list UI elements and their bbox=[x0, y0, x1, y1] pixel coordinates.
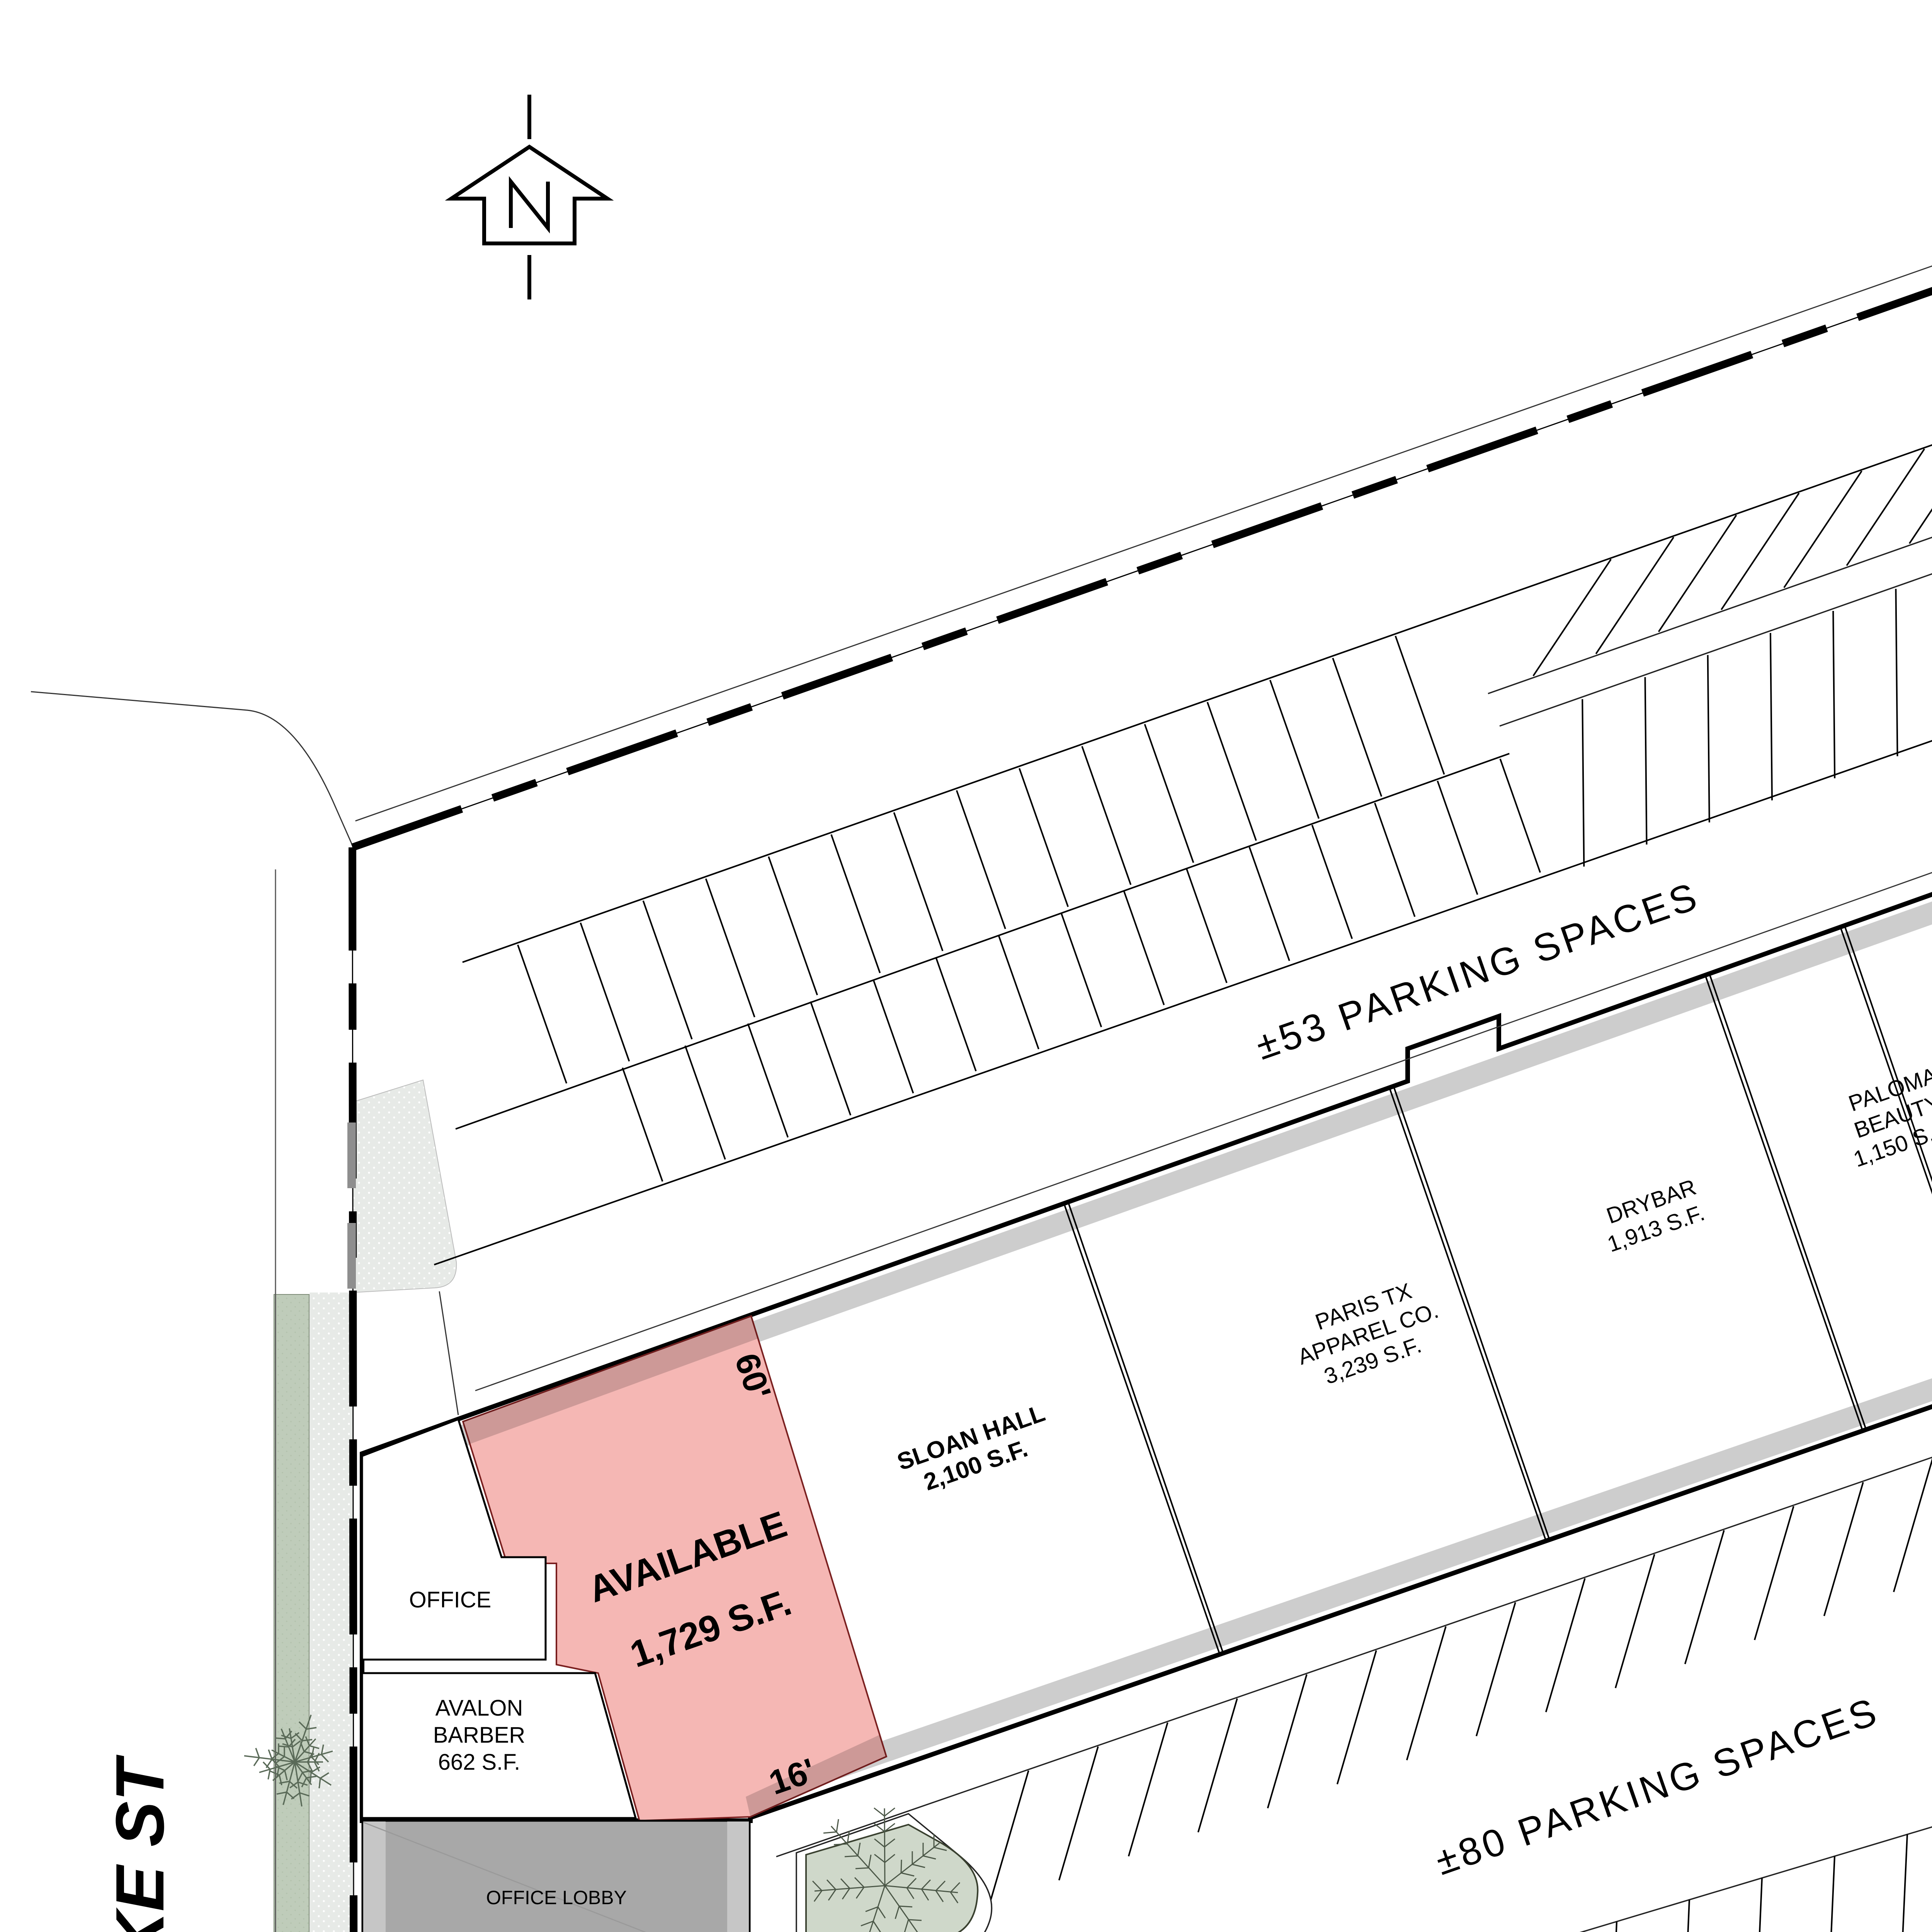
svg-text:OFFICE LOBBY: OFFICE LOBBY bbox=[486, 1887, 627, 1908]
svg-text:BARBER: BARBER bbox=[433, 1723, 526, 1748]
svg-text:OFFICE: OFFICE bbox=[409, 1587, 492, 1612]
svg-text:LAKE ST: LAKE ST bbox=[102, 1755, 178, 1932]
svg-text:AVALON: AVALON bbox=[435, 1696, 523, 1721]
svg-text:662 S.F.: 662 S.F. bbox=[438, 1750, 520, 1775]
